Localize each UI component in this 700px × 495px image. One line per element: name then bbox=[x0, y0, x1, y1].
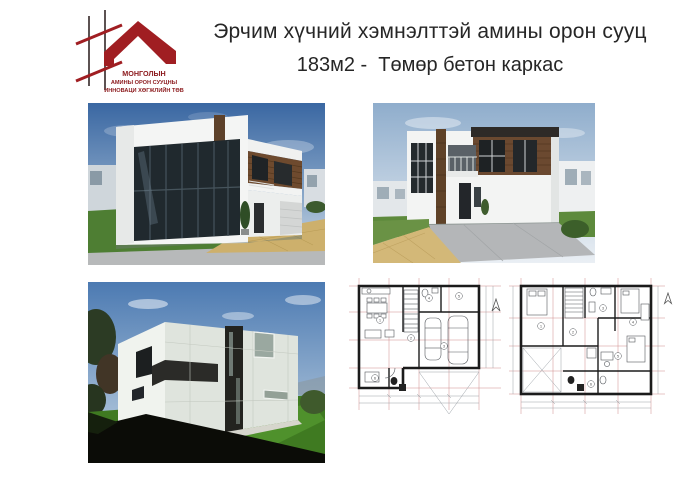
logo-text-line1: МОНГОЛЫН bbox=[122, 69, 165, 78]
bedroom-furniture bbox=[527, 289, 649, 367]
render-corner-view bbox=[88, 103, 325, 265]
balcony-cross bbox=[523, 348, 561, 392]
company-logo: МОНГОЛЫН АМИНЫ ОРОН СУУЦНЫ ИННОВАЦИ ХӨГЖ… bbox=[74, 4, 202, 98]
logo-poles bbox=[89, 10, 105, 90]
svg-text:1: 1 bbox=[379, 318, 381, 322]
svg-text:4: 4 bbox=[428, 296, 430, 300]
slide-title: Эрчим хүчний хэмнэлттэй амины орон сууц … bbox=[208, 16, 652, 77]
cypress-tree bbox=[240, 201, 250, 229]
second-floor-plan: 1 2 3 4 5 6 bbox=[503, 276, 670, 422]
svg-text:6: 6 bbox=[374, 376, 376, 380]
render-rear-view bbox=[88, 282, 325, 463]
svg-text:2: 2 bbox=[572, 330, 574, 334]
north-arrow-icon bbox=[489, 298, 503, 314]
title-line-1: Эрчим хүчний хэмнэлттэй амины орон сууц bbox=[208, 20, 652, 44]
svg-text:3: 3 bbox=[443, 344, 445, 348]
house bbox=[407, 127, 559, 225]
svg-text:6: 6 bbox=[590, 382, 592, 386]
stairs bbox=[404, 290, 418, 332]
north-arrow-icon bbox=[662, 292, 674, 306]
first-floor-plan: 1 2 3 4 5 6 bbox=[345, 276, 505, 422]
presentation-slide: { "logo": { "line1": "МОНГОЛЫН", "line2"… bbox=[0, 0, 700, 495]
svg-text:5: 5 bbox=[458, 294, 460, 298]
svg-text:4: 4 bbox=[632, 320, 634, 324]
entry-plant bbox=[481, 199, 489, 215]
svg-text:5: 5 bbox=[617, 354, 619, 358]
logo-text-line2: АМИНЫ ОРОН СУУЦНЫ bbox=[111, 80, 178, 86]
svg-text:2: 2 bbox=[410, 336, 412, 340]
bush-right bbox=[561, 220, 589, 238]
bathroom-fixtures bbox=[568, 288, 611, 391]
stairs bbox=[565, 288, 583, 318]
svg-text:1: 1 bbox=[540, 324, 542, 328]
logo-house-icon: МОНГОЛЫН АМИНЫ ОРОН СУУЦНЫ ИННОВАЦИ ХӨГЖ… bbox=[74, 4, 202, 98]
title-line-2: 183м2 - Төмөр бетон каркас bbox=[208, 54, 652, 77]
svg-text:3: 3 bbox=[602, 306, 604, 310]
render-front-view bbox=[373, 103, 595, 263]
logo-text-line3: ИННОВАЦИ ХӨГЖЛИЙН ТӨВ bbox=[104, 86, 184, 94]
